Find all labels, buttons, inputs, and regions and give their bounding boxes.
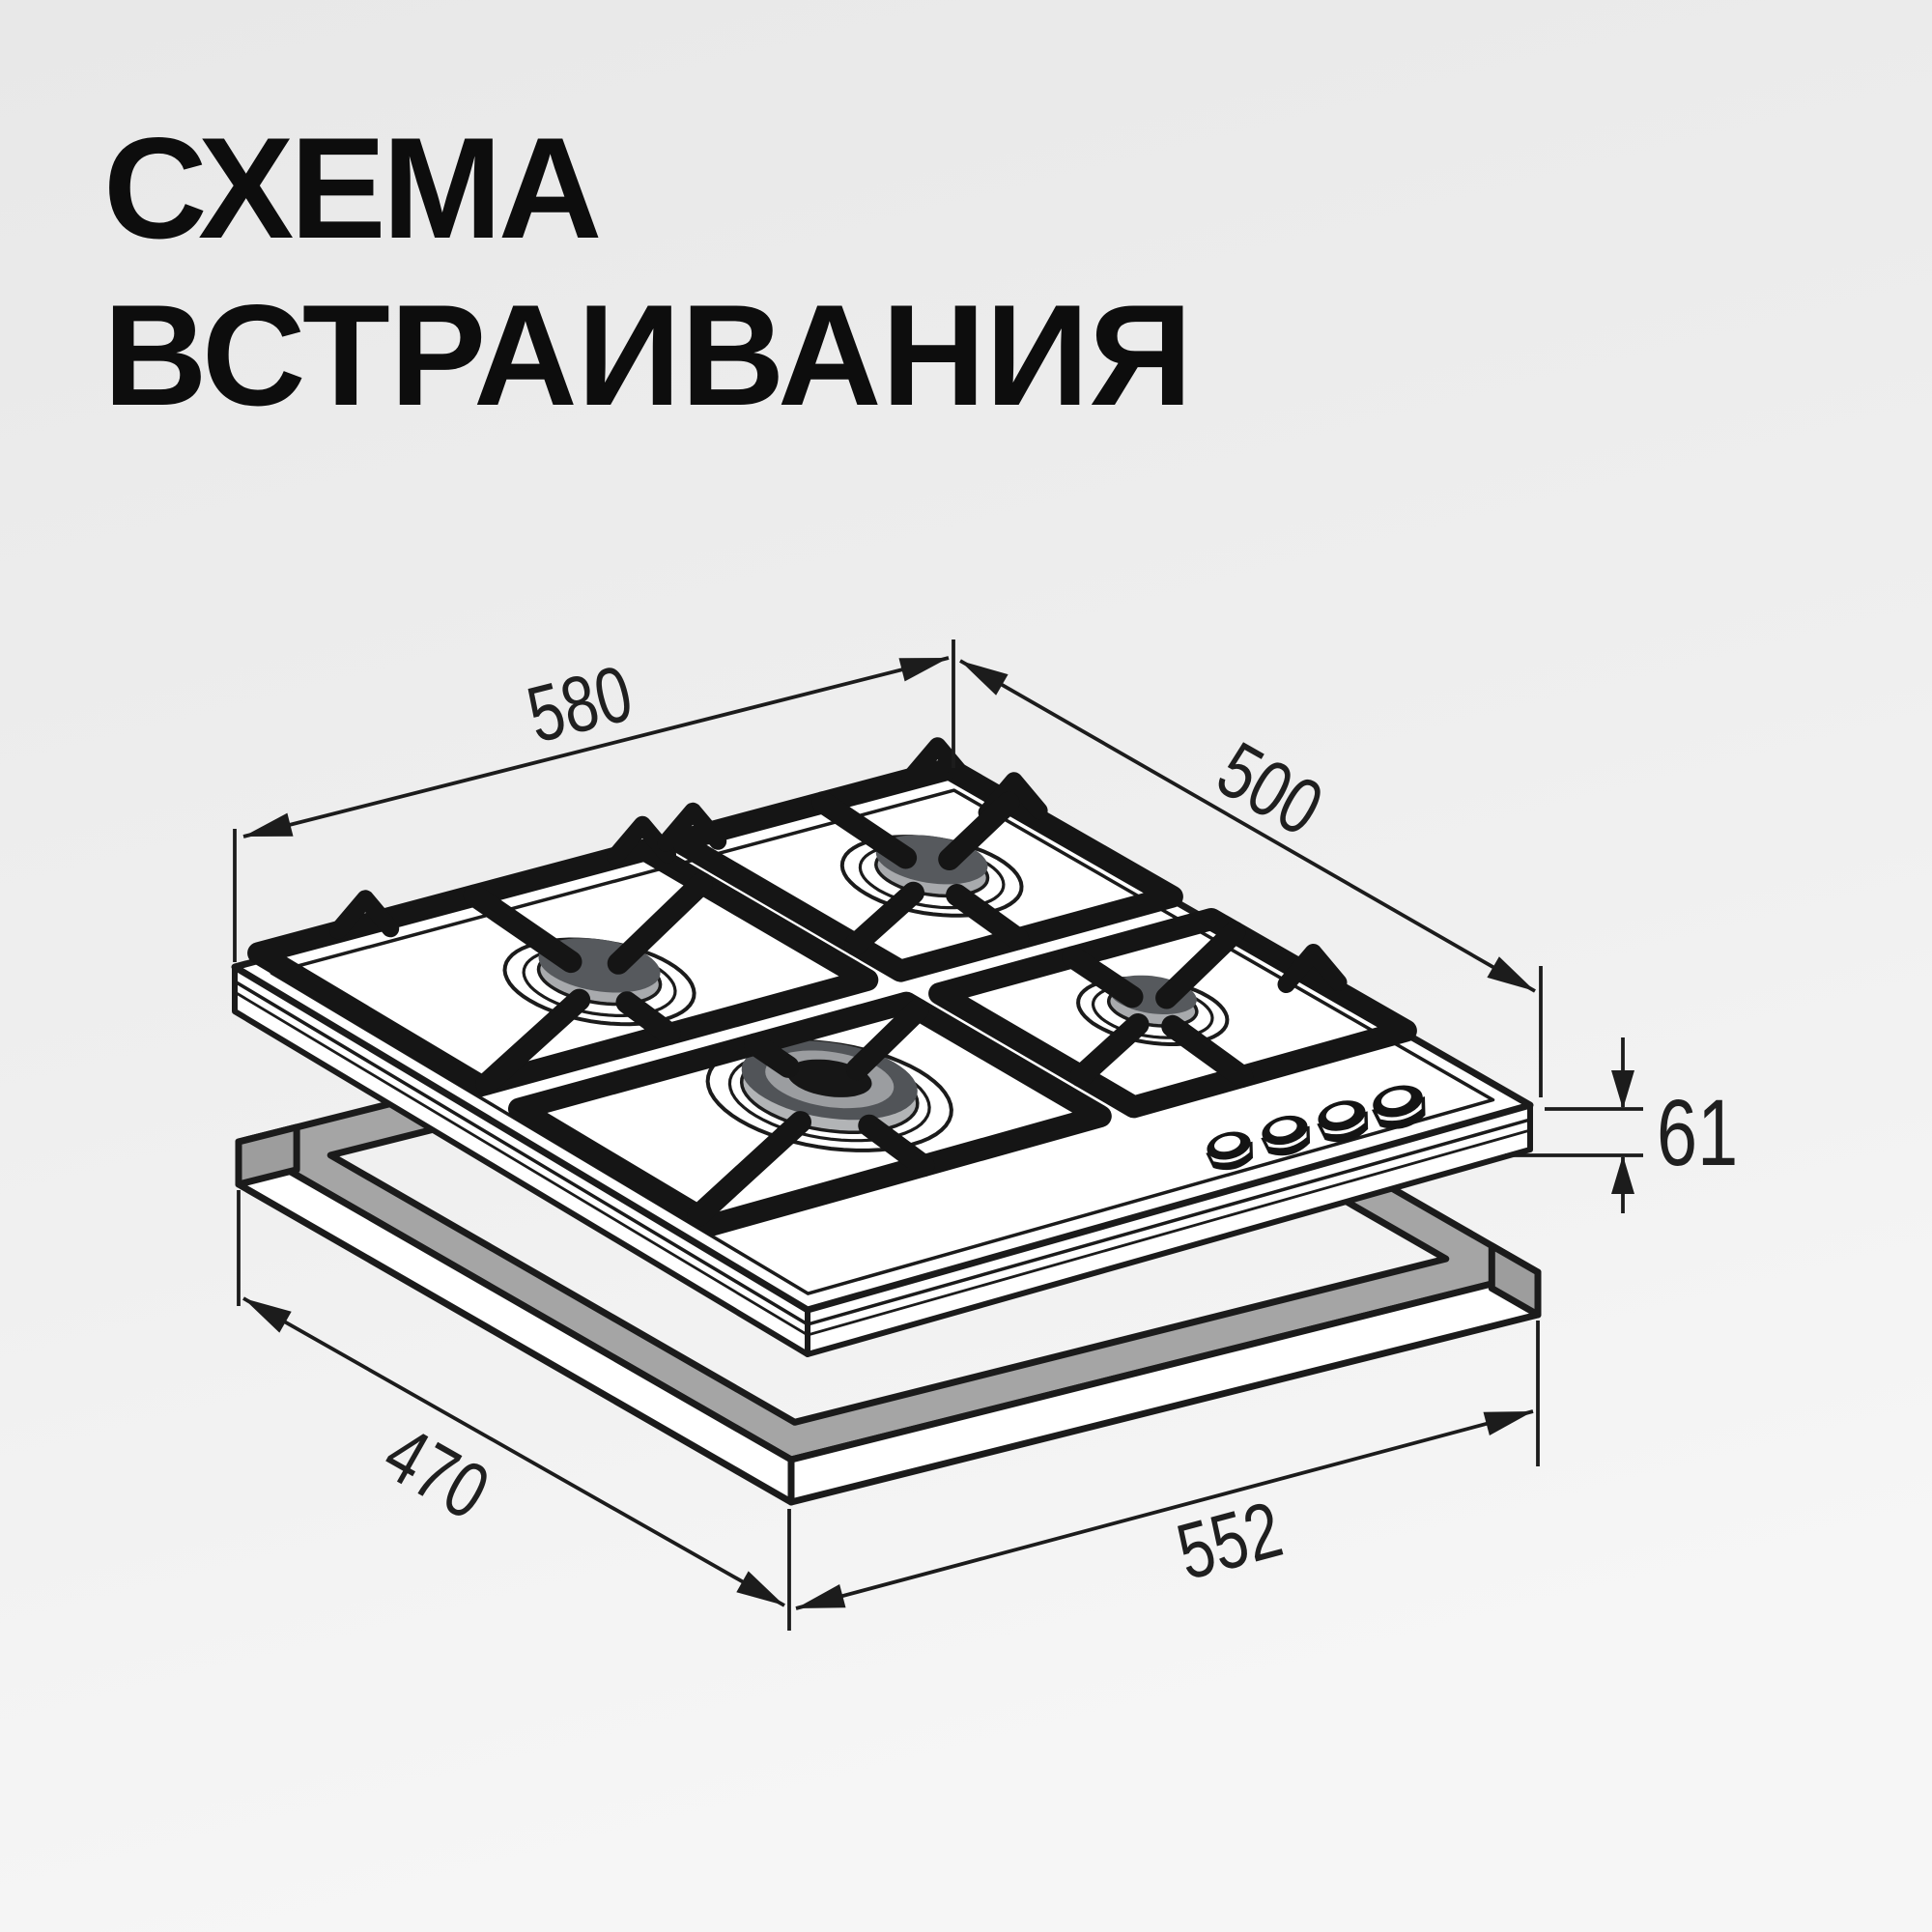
svg-text:СХЕМА: СХЕМА <box>103 107 599 269</box>
svg-text:61: 61 <box>1657 1081 1738 1185</box>
svg-text:ВСТРАИВАНИЯ: ВСТРАИВАНИЯ <box>103 274 1192 436</box>
